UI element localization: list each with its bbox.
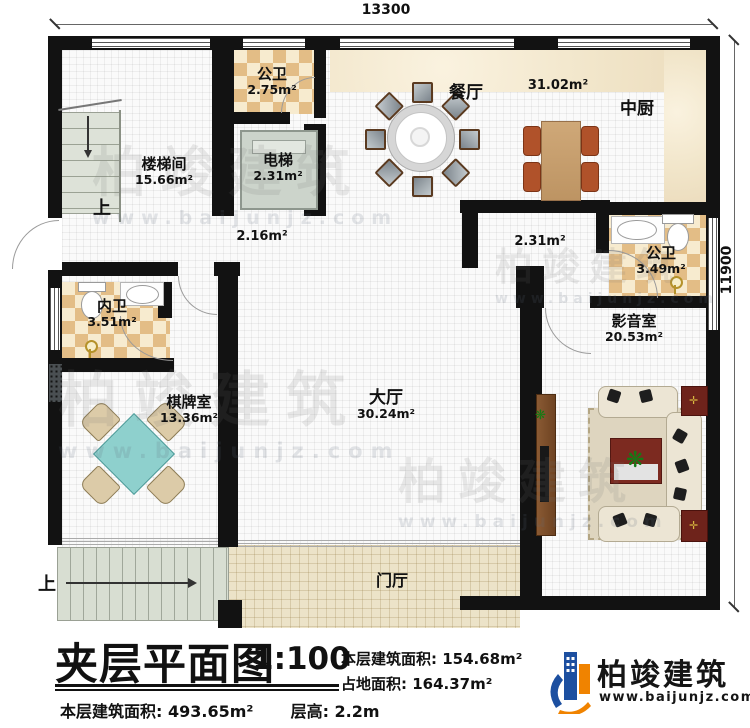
room-label-qipaishi: 棋牌室 13.36m² (160, 394, 218, 425)
dining-chair (412, 176, 433, 197)
dimension-line-top (55, 24, 713, 25)
kitchen-chair (581, 162, 599, 192)
floor-height-value: 2.2m (335, 702, 380, 721)
room-label-canting: 餐厅 (449, 85, 483, 102)
room-area-canting: 31.02m² (528, 78, 588, 93)
stair-arrow (66, 582, 188, 584)
stair-arrow (87, 116, 89, 150)
stair-arrow-head (84, 150, 92, 158)
footprint-label: 占地面积: (341, 675, 407, 693)
side-table: ✛ (681, 510, 708, 542)
window (558, 38, 690, 48)
wall-segment (596, 215, 609, 253)
sofa (598, 506, 680, 542)
dining-chair (459, 129, 480, 150)
floor-area-value: 154.68m² (442, 650, 522, 668)
wall-segment (218, 600, 242, 628)
kitchen-chair (523, 126, 541, 156)
dimension-line-right (734, 40, 735, 608)
floor-height-label: 层高: (291, 702, 329, 721)
title-underline (55, 684, 339, 687)
kitchen-table (541, 121, 581, 201)
wall-segment (212, 36, 234, 216)
floor-drain (670, 276, 683, 289)
room-label-gongwei-right: 公卫 3.49m² (636, 245, 685, 276)
plan-scale: 1:100 (252, 641, 351, 677)
window (92, 38, 210, 48)
kitchen-counter-top (330, 50, 706, 92)
window (50, 288, 60, 350)
room-label-zhongchu: 中厨 (620, 101, 654, 118)
wall-segment (314, 50, 326, 118)
window (340, 38, 514, 48)
wall-segment (48, 262, 178, 276)
dining-table-lazy-susan (410, 127, 430, 147)
floor-drain-stem (89, 349, 91, 358)
kitchen-counter-right (664, 50, 706, 206)
footprint-value: 164.37m² (412, 675, 492, 693)
room-label-dating: 大厅 30.24m² (357, 390, 415, 421)
room-label-louti: 楼梯间 15.66m² (135, 156, 193, 187)
side-table: ✛ (681, 386, 708, 416)
wall-segment (218, 262, 238, 547)
floor-area-line: 本层建筑面积: 154.68m² (341, 648, 522, 669)
wall-segment (48, 358, 174, 372)
tv-screen (540, 446, 549, 502)
floor-drain (85, 340, 98, 353)
dining-chair (412, 82, 433, 103)
title-underline (55, 689, 339, 691)
total-area-line: 本层建筑面积: 493.65m² 层高: 2.2m (60, 698, 380, 722)
brand-name: 柏竣建筑 (597, 650, 729, 694)
plan-title: 夹层平面图 (55, 630, 275, 692)
pillow (673, 487, 687, 501)
threshold-lines (62, 538, 228, 546)
brand-website: www.baijunjz.com (599, 690, 750, 705)
plant-icon: ❋ (535, 408, 546, 423)
window (243, 38, 305, 48)
kitchen-chair (581, 126, 599, 156)
entry-hall-floor (227, 545, 520, 628)
staircase-lower (57, 547, 229, 621)
plant-icon: ❋ (626, 448, 644, 473)
wall-segment (460, 596, 720, 610)
room-label-menting: 门厅 (376, 572, 408, 589)
wall-segment (516, 266, 544, 308)
floor-area-label: 本层建筑面积: (341, 650, 437, 668)
stair-arrow-head (188, 578, 197, 588)
room-label-dianti: 电梯 2.31m² (253, 152, 302, 183)
corridor-area-right: 2.31m² (514, 234, 565, 249)
wall-segment (234, 112, 290, 124)
kitchen-chair (523, 162, 541, 192)
total-area-label: 本层建筑面积: (60, 702, 162, 721)
sink-basin (617, 220, 657, 240)
dimension-right-value: 11900 (719, 240, 735, 300)
brand-logo-icon (546, 648, 592, 718)
dining-chair (365, 129, 386, 150)
stairs-up-label: 上 (93, 194, 111, 220)
room-label-neiwei: 内卫 3.51m² (87, 298, 136, 329)
dimension-top-value: 13300 (362, 2, 411, 18)
wall-segment (460, 200, 610, 213)
corridor-area-left: 2.16m² (236, 229, 287, 244)
total-area-value: 493.65m² (168, 702, 253, 721)
floor-drain-stem (674, 285, 676, 294)
staircase-upper (60, 112, 120, 214)
footprint-line: 占地面积: 164.37m² (341, 673, 492, 694)
stair-rail (119, 110, 121, 222)
window (708, 218, 718, 330)
wall-vent (49, 364, 62, 402)
room-label-yingyinshi: 影音室 20.53m² (605, 313, 663, 344)
floor-plan-canvas: 13300 11900 上 (0, 0, 750, 728)
stairs-up-label: 上 (38, 570, 56, 596)
wall-segment (462, 213, 478, 268)
room-label-gongwei-top: 公卫 2.75m² (247, 66, 296, 97)
threshold-lines (232, 540, 520, 547)
door-arc (12, 220, 59, 269)
